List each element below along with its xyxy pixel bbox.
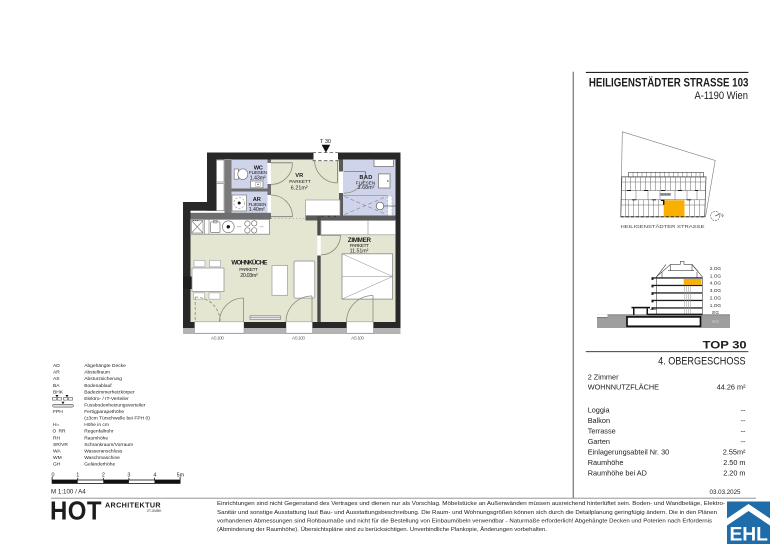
svg-text:Einlagerungsabteil Nr. 30: Einlagerungsabteil Nr. 30	[588, 448, 670, 457]
svg-text:Fertigparapethöhe: Fertigparapethöhe	[84, 409, 124, 415]
svg-text:BHK: BHK	[53, 389, 64, 395]
svg-text:HEILIGENSTÄDTER STRASSE: HEILIGENSTÄDTER STRASSE	[621, 224, 705, 229]
svg-text:2.50 m: 2.50 m	[723, 458, 745, 467]
svg-text:Höhe in cm: Höhe in cm	[84, 422, 109, 428]
svg-text:Raumhöhe: Raumhöhe	[588, 458, 624, 467]
svg-text:AS 100: AS 100	[292, 336, 305, 342]
svg-text:Regenfallrohr: Regenfallrohr	[84, 429, 114, 435]
svg-text:(Abminderung der Raumhöhe). Üb: (Abminderung der Raumhöhe). Übersichtspl…	[217, 526, 547, 533]
svg-text:ZT-GMBH: ZT-GMBH	[147, 509, 162, 513]
svg-text:SR/VR: SR/VR	[53, 442, 68, 448]
svg-text:Abstellraum: Abstellraum	[84, 370, 110, 376]
svg-text:vorhandenen Abmessungen sind R: vorhandenen Abmessungen sind Rohbaumaße …	[217, 518, 712, 524]
svg-text:AS: AS	[53, 376, 60, 382]
svg-text:AD: AD	[53, 363, 60, 369]
svg-text:3.OG: 3.OG	[710, 288, 722, 293]
svg-text:WM: WM	[53, 455, 62, 461]
svg-text:BAD: BAD	[359, 175, 372, 181]
svg-text:4: 4	[153, 472, 156, 478]
svg-text:--: --	[741, 416, 746, 425]
svg-text:2: 2	[102, 472, 105, 478]
svg-text:Schrankraum/Vorraum: Schrankraum/Vorraum	[84, 442, 133, 448]
svg-text:20.03m²: 20.03m²	[240, 273, 258, 279]
svg-text:Balkon: Balkon	[588, 416, 610, 425]
svg-text:3: 3	[127, 472, 130, 478]
svg-text:44.26 m²: 44.26 m²	[717, 383, 746, 392]
svg-text:AS 100: AS 100	[211, 336, 224, 342]
svg-text:EG: EG	[712, 310, 719, 315]
svg-text:BA: BA	[53, 383, 60, 389]
svg-text:AS 100: AS 100	[351, 336, 364, 342]
svg-text:WOHNKÜCHE: WOHNKÜCHE	[231, 257, 267, 266]
svg-text:Wasseranschluss: Wasseranschluss	[84, 449, 123, 455]
svg-text:H=: H=	[53, 422, 60, 428]
svg-text:Einrichtungen sind nicht Gegen: Einrichtungen sind nicht Gegenstand des …	[217, 501, 725, 507]
svg-text:Geländerhöhe: Geländerhöhe	[84, 462, 115, 468]
svg-text:4.OG: 4.OG	[710, 280, 722, 285]
svg-text:TOP 30: TOP 30	[703, 339, 747, 351]
svg-text:Abgehängte Decke: Abgehängte Decke	[84, 363, 126, 369]
svg-text:PARKETT: PARKETT	[289, 179, 311, 185]
svg-text:3.68m²: 3.68m²	[358, 185, 375, 191]
svg-text:WA: WA	[53, 449, 61, 455]
svg-text:RH: RH	[53, 435, 61, 441]
svg-text:Loggia: Loggia	[588, 405, 611, 414]
svg-text:Waschmaschine: Waschmaschine	[84, 455, 120, 461]
svg-text:FPH: FPH	[53, 409, 63, 415]
svg-text:EHL: EHL	[729, 524, 768, 545]
svg-text:ZIMMER: ZIMMER	[348, 237, 372, 244]
svg-text:--: --	[741, 437, 746, 446]
svg-text:2 Zimmer: 2 Zimmer	[588, 372, 619, 381]
svg-text:1.40m²: 1.40m²	[249, 207, 265, 213]
svg-text:1: 1	[76, 472, 79, 478]
svg-text:1.43m²: 1.43m²	[250, 176, 266, 182]
svg-text:1.OG: 1.OG	[710, 274, 722, 279]
svg-text:GH: GH	[53, 462, 61, 468]
svg-text:4. OBERGESCHOSS: 4. OBERGESCHOSS	[658, 356, 746, 368]
svg-text:Badezimmerheizkörper: Badezimmerheizkörper	[84, 389, 135, 395]
svg-text:2.OG: 2.OG	[710, 266, 722, 271]
svg-text:AR: AR	[53, 370, 60, 376]
svg-text:Garten: Garten	[588, 437, 610, 446]
svg-text:2.20 m: 2.20 m	[723, 469, 745, 478]
svg-text:T 30: T 30	[320, 139, 331, 145]
svg-text:Elektro- / IT-Verteiler: Elektro- / IT-Verteiler	[84, 396, 129, 402]
svg-text:5m: 5m	[177, 472, 185, 478]
svg-text:Sanitär und sonstige Ausstattu: Sanitär und sonstige Ausstattung laut Ba…	[217, 510, 717, 516]
svg-text:HEILIGENSTÄDTER STRASSE 103: HEILIGENSTÄDTER STRASSE 103	[589, 75, 749, 90]
svg-text:11.51m²: 11.51m²	[350, 249, 369, 255]
svg-text:HOT: HOT	[50, 496, 102, 526]
svg-text:WOHNNUTZFLÄCHE: WOHNNUTZFLÄCHE	[588, 383, 659, 392]
svg-text:Fussbodenheizungsverteiler: Fussbodenheizungsverteiler	[84, 403, 146, 409]
svg-text:Raumhöhe: Raumhöhe	[84, 435, 108, 441]
svg-text:VR: VR	[295, 173, 303, 179]
svg-text:--: --	[741, 405, 746, 414]
svg-text:6.21m²: 6.21m²	[291, 186, 308, 192]
svg-text:KG: KG	[712, 319, 719, 324]
svg-text:A-1190 Wien: A-1190 Wien	[695, 90, 749, 102]
svg-text:1.OG: 1.OG	[710, 303, 722, 308]
svg-text:Absturzsicherung: Absturzsicherung	[84, 376, 122, 382]
svg-text:2.55m²: 2.55m²	[723, 448, 746, 457]
svg-text:(±3cm Türschwelle bei FPH 0): (±3cm Türschwelle bei FPH 0)	[84, 416, 150, 422]
svg-text:Raumhöhe bei AD: Raumhöhe bei AD	[588, 469, 647, 478]
svg-text:Bodenablauf: Bodenablauf	[84, 383, 112, 389]
svg-text:Terrasse: Terrasse	[588, 427, 616, 436]
svg-text:RR: RR	[59, 429, 67, 435]
svg-text:--: --	[741, 427, 746, 436]
svg-text:2.OG: 2.OG	[710, 295, 722, 300]
svg-text:03.03.2025: 03.03.2025	[710, 489, 742, 496]
